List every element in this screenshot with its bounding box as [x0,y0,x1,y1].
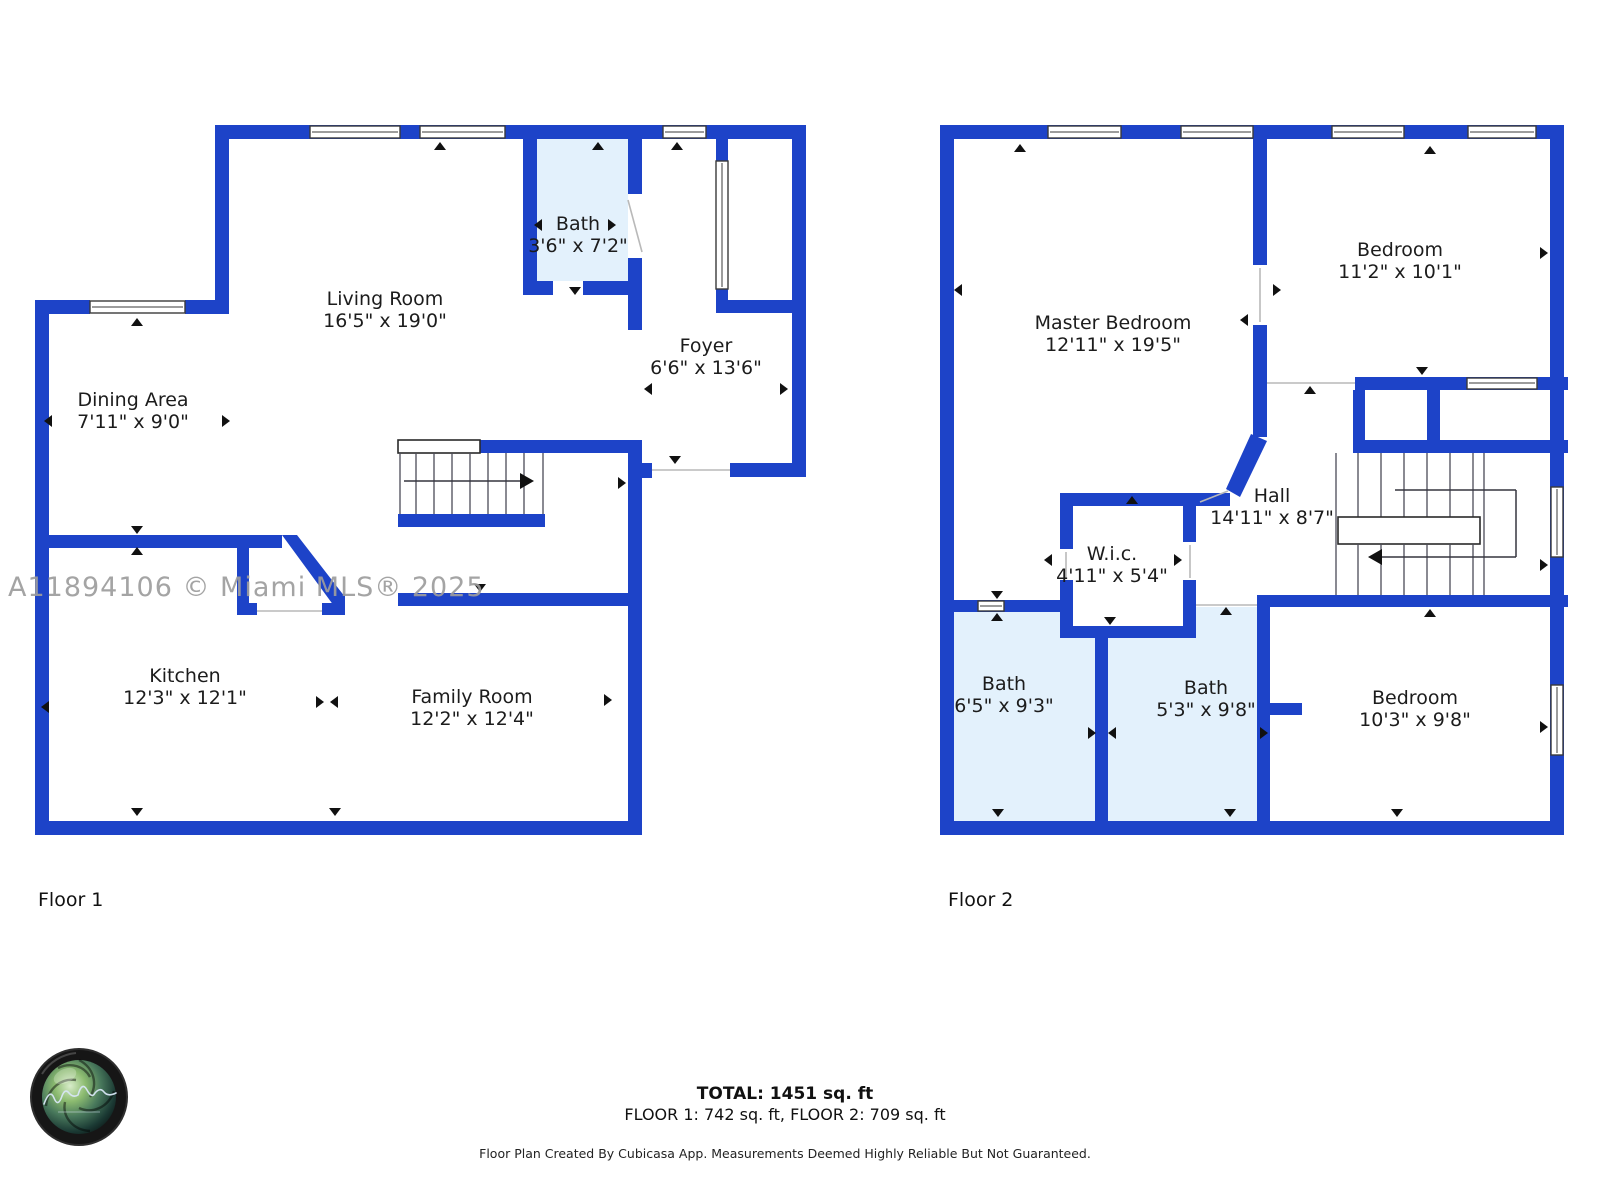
mls-watermark: A11894106 © Miami MLS® 2025 [8,572,485,603]
room-label-bath-west: Bath 6'5" x 9'3" [954,674,1054,717]
room-name: Bedroom [1338,240,1462,262]
window-icon [1551,685,1563,755]
room-label-bath-mid: Bath 5'3" x 9'8" [1156,678,1256,721]
room-dims: 6'6" x 13'6" [650,358,762,380]
room-label-dining-area: Dining Area 7'11" x 9'0" [77,390,189,433]
room-label-bedroom-se: Bedroom 10'3" x 9'8" [1359,688,1471,731]
floor2-plan [940,125,1568,835]
room-dims: 3'6" x 7'2" [528,236,628,258]
room-label-family-room: Family Room 12'2" x 12'4" [410,687,534,730]
room-name: Living Room [323,289,447,311]
window-icon [663,126,706,138]
window-icon [1467,378,1537,389]
room-dims: 16'5" x 19'0" [323,311,447,333]
window-icon [716,161,728,289]
room-label-living-room: Living Room 16'5" x 19'0" [323,289,447,332]
room-name: Master Bedroom [1035,313,1192,335]
camera-lens-logo-icon [28,1046,130,1148]
room-name: Bath [1156,678,1256,700]
room-label-hall: Hall 14'11" x 8'7" [1210,486,1334,529]
room-dims: 5'3" x 9'8" [1156,700,1256,722]
room-name: W.i.c. [1056,544,1168,566]
window-icon [978,601,1004,611]
room-label-bath-f1: Bath 3'6" x 7'2" [528,214,628,257]
room-dims: 4'11" x 5'4" [1056,566,1168,588]
disclaimer-text: Floor Plan Created By Cubicasa App. Meas… [0,1146,1570,1161]
window-icon [420,126,505,138]
floor1-caption: Floor 1 [38,889,103,911]
window-icon [1468,126,1536,138]
room-dims: 10'3" x 9'8" [1359,710,1471,732]
floorplan-page: Living Room 16'5" x 19'0" Bath 3'6" x 7'… [0,0,1600,1200]
bath-floor-fill [537,139,628,281]
room-name: Foyer [650,336,762,358]
room-name: Dining Area [77,390,189,412]
room-label-bedroom-ne: Bedroom 11'2" x 10'1" [1338,240,1462,283]
room-dims: 6'5" x 9'3" [954,696,1054,718]
room-name: Hall [1210,486,1334,508]
window-icon [1551,487,1563,557]
room-dims: 12'11" x 19'5" [1035,335,1192,357]
room-dims: 12'3" x 12'1" [123,688,247,710]
room-name: Family Room [410,687,534,709]
room-label-wic: W.i.c. 4'11" x 5'4" [1056,544,1168,587]
room-name: Bath [528,214,628,236]
window-icon [1181,126,1253,138]
total-sqft: TOTAL: 1451 sq. ft [0,1084,1570,1104]
room-label-master-bedroom: Master Bedroom 12'11" x 19'5" [1035,313,1192,356]
room-dims: 12'2" x 12'4" [410,709,534,731]
room-name: Bath [954,674,1054,696]
room-label-kitchen: Kitchen 12'3" x 12'1" [123,666,247,709]
room-dims: 11'2" x 10'1" [1338,262,1462,284]
footer-summary: TOTAL: 1451 sq. ft FLOOR 1: 742 sq. ft, … [0,1084,1570,1161]
floor2-caption: Floor 2 [948,889,1013,911]
room-name: Bedroom [1359,688,1471,710]
per-floor-sqft: FLOOR 1: 742 sq. ft, FLOOR 2: 709 sq. ft [0,1105,1570,1124]
floor2-stairs [1336,453,1516,595]
window-icon [1332,126,1404,138]
window-icon [310,126,400,138]
window-icon [90,301,185,313]
window-icon [1048,126,1121,138]
room-name: Kitchen [123,666,247,688]
room-dims: 14'11" x 8'7" [1210,508,1334,530]
room-dims: 7'11" x 9'0" [77,412,189,434]
room-label-foyer: Foyer 6'6" x 13'6" [650,336,762,379]
